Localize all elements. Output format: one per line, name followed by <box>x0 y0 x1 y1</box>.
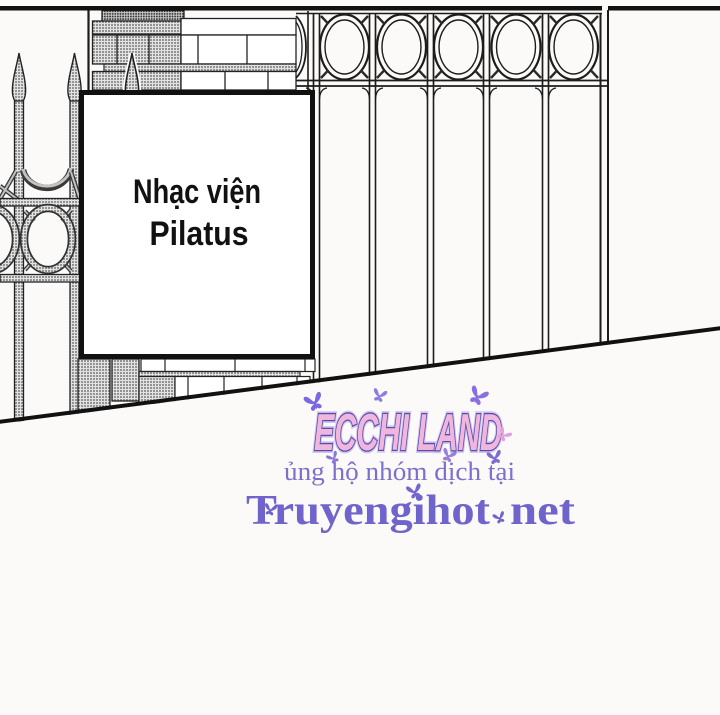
svg-text:ECCHI LAND: ECCHI LAND <box>314 404 502 462</box>
svg-text:ủng hộ nhóm dịch tại: ủng hộ nhóm dịch tại <box>284 457 515 486</box>
svg-text:net: net <box>510 488 575 534</box>
svg-text:Nhạc viện: Nhạc viện <box>133 173 261 211</box>
svg-text:Truyengihot: Truyengihot <box>246 488 490 534</box>
svg-text:Pilatus: Pilatus <box>150 215 249 253</box>
